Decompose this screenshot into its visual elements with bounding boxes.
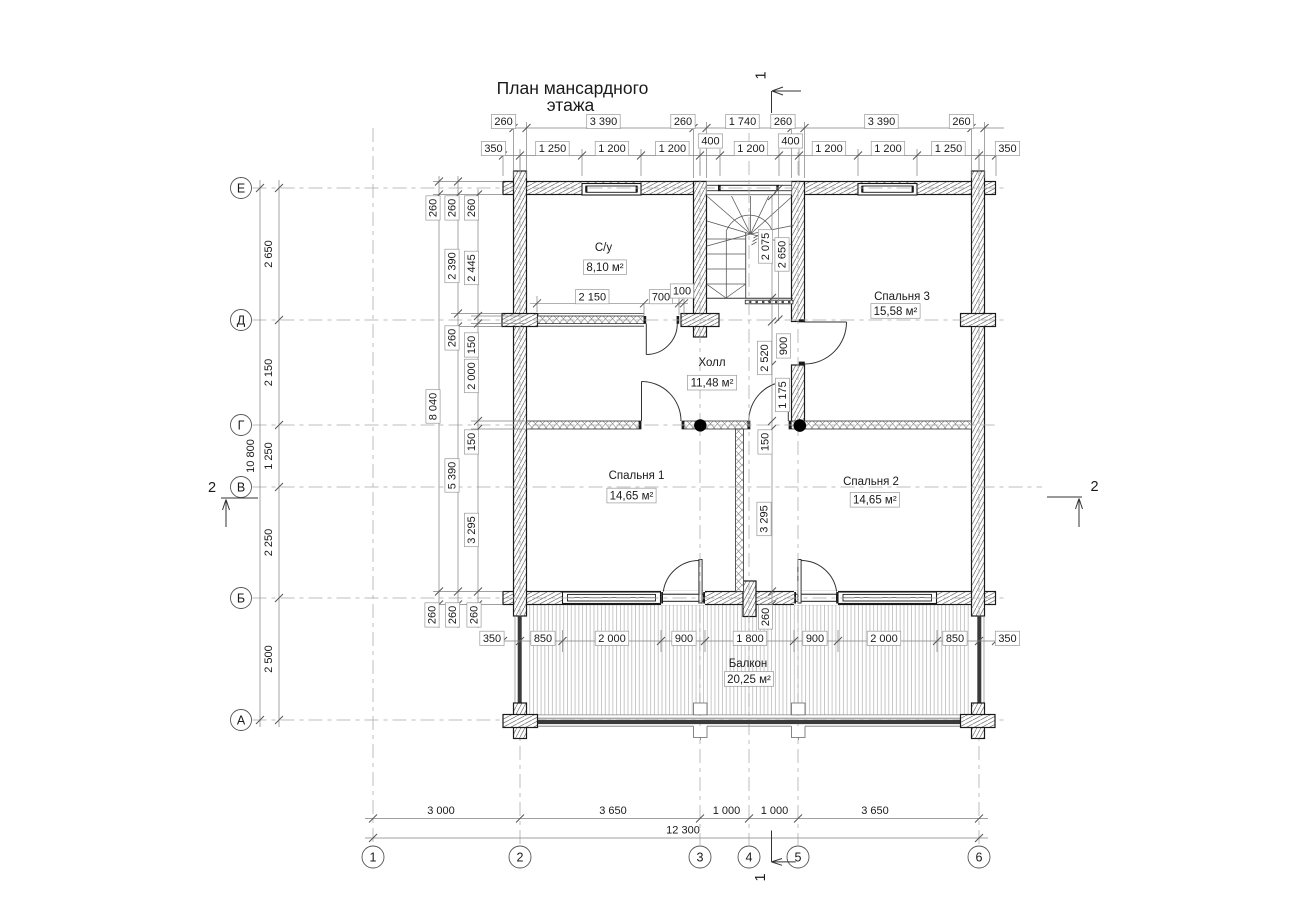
svg-text:260: 260: [447, 199, 459, 217]
svg-text:2: 2: [517, 850, 524, 864]
svg-text:260: 260: [447, 329, 459, 347]
svg-text:2 150: 2 150: [579, 291, 607, 303]
svg-text:3 650: 3 650: [861, 805, 889, 817]
svg-text:1 200: 1 200: [815, 143, 843, 155]
svg-text:2 000: 2 000: [870, 633, 898, 645]
svg-text:2 650: 2 650: [263, 240, 275, 268]
svg-text:1 175: 1 175: [777, 381, 789, 409]
svg-text:900: 900: [778, 337, 790, 355]
svg-text:2 390: 2 390: [447, 252, 459, 280]
svg-text:В: В: [237, 480, 245, 494]
svg-text:11,48 м²: 11,48 м²: [691, 378, 734, 390]
svg-text:2 650: 2 650: [777, 241, 789, 269]
svg-text:1 200: 1 200: [598, 143, 626, 155]
svg-text:2 445: 2 445: [466, 254, 478, 282]
svg-text:Е: Е: [237, 181, 245, 195]
svg-text:3 295: 3 295: [466, 516, 478, 544]
svg-text:14,65 м²: 14,65 м²: [610, 491, 654, 503]
svg-text:260: 260: [466, 199, 478, 217]
svg-text:1 740: 1 740: [729, 116, 757, 128]
svg-text:3: 3: [697, 850, 704, 864]
svg-text:150: 150: [466, 336, 478, 354]
svg-text:1 250: 1 250: [263, 442, 275, 470]
svg-text:150: 150: [760, 433, 772, 451]
svg-text:850: 850: [534, 633, 552, 645]
svg-text:2 000: 2 000: [466, 362, 478, 390]
svg-text:2: 2: [208, 480, 216, 496]
svg-text:260: 260: [774, 116, 792, 128]
svg-text:700: 700: [652, 291, 670, 303]
svg-text:400: 400: [781, 136, 799, 148]
svg-text:260: 260: [427, 606, 439, 624]
svg-text:1 000: 1 000: [713, 805, 741, 817]
svg-text:10 800: 10 800: [245, 439, 257, 473]
svg-text:20,25 м²: 20,25 м²: [727, 674, 771, 686]
svg-text:12 300: 12 300: [666, 825, 700, 837]
svg-text:1 000: 1 000: [761, 805, 789, 817]
svg-text:4: 4: [746, 850, 753, 864]
svg-text:1 250: 1 250: [935, 143, 963, 155]
svg-text:3 000: 3 000: [427, 805, 455, 817]
svg-text:Спальня 1: Спальня 1: [609, 470, 665, 482]
svg-text:Г: Г: [238, 418, 245, 432]
svg-text:260: 260: [674, 116, 692, 128]
svg-text:850: 850: [946, 633, 964, 645]
svg-text:3 390: 3 390: [868, 116, 896, 128]
svg-text:350: 350: [998, 633, 1016, 645]
svg-text:260: 260: [952, 116, 970, 128]
svg-text:100: 100: [673, 286, 691, 298]
svg-text:1 200: 1 200: [737, 143, 765, 155]
svg-text:2 000: 2 000: [598, 633, 626, 645]
svg-text:1: 1: [753, 71, 769, 79]
svg-text:3 390: 3 390: [590, 116, 618, 128]
svg-text:6: 6: [976, 850, 983, 864]
svg-text:260: 260: [469, 606, 481, 624]
svg-text:Д: Д: [237, 313, 246, 327]
svg-text:5 390: 5 390: [447, 462, 459, 490]
svg-text:900: 900: [806, 633, 824, 645]
svg-text:Холл: Холл: [698, 357, 725, 369]
svg-text:1: 1: [753, 873, 769, 881]
svg-text:2 075: 2 075: [760, 233, 772, 261]
svg-text:260: 260: [760, 608, 772, 626]
svg-text:260: 260: [447, 606, 459, 624]
svg-text:1 250: 1 250: [539, 143, 567, 155]
svg-text:1: 1: [370, 850, 377, 864]
svg-text:А: А: [237, 713, 246, 727]
svg-text:2 150: 2 150: [263, 359, 275, 387]
svg-text:260: 260: [428, 199, 440, 217]
svg-text:2 250: 2 250: [263, 529, 275, 557]
svg-text:2 500: 2 500: [263, 645, 275, 673]
svg-text:1 200: 1 200: [874, 143, 902, 155]
svg-text:3 650: 3 650: [599, 805, 627, 817]
svg-text:1 800: 1 800: [736, 633, 764, 645]
svg-text:2 520: 2 520: [759, 344, 771, 372]
svg-text:260: 260: [494, 116, 512, 128]
svg-text:2: 2: [1090, 479, 1098, 495]
svg-text:14,65 м²: 14,65 м²: [853, 495, 897, 507]
svg-text:15,58 м²: 15,58 м²: [874, 306, 918, 318]
svg-text:400: 400: [701, 136, 719, 148]
svg-text:Спальня 3: Спальня 3: [874, 291, 930, 303]
svg-text:350: 350: [484, 143, 502, 155]
svg-text:8,10 м²: 8,10 м²: [586, 262, 623, 274]
svg-text:150: 150: [466, 433, 478, 451]
svg-text:900: 900: [675, 633, 693, 645]
svg-text:3 295: 3 295: [759, 505, 771, 533]
svg-text:1 200: 1 200: [659, 143, 687, 155]
svg-text:Спальня 2: Спальня 2: [843, 476, 899, 488]
svg-text:Балкон: Балкон: [729, 658, 768, 670]
svg-text:Б: Б: [237, 591, 245, 605]
svg-text:350: 350: [483, 633, 501, 645]
svg-text:350: 350: [998, 143, 1016, 155]
svg-text:этажа: этажа: [547, 95, 595, 115]
svg-text:С/у: С/у: [595, 242, 613, 254]
svg-text:8 040: 8 040: [428, 393, 440, 421]
